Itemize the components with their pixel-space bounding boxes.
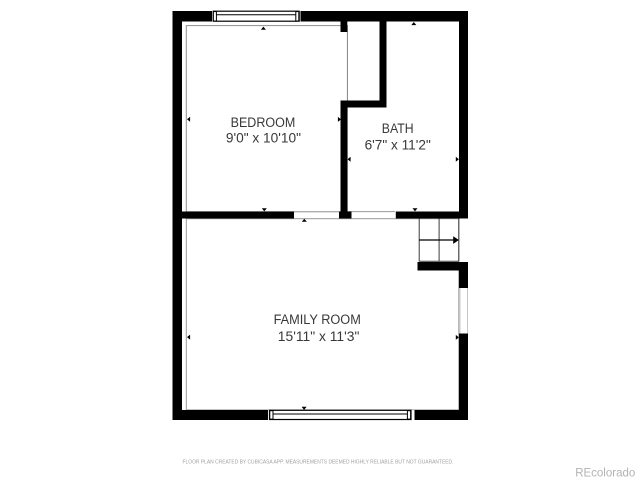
- svg-text:FAMILY ROOM: FAMILY ROOM: [274, 312, 361, 328]
- svg-text:BATH: BATH: [382, 121, 414, 137]
- svg-text:REcolorado: REcolorado: [575, 466, 635, 480]
- svg-text:9'0" x 10'10": 9'0" x 10'10": [226, 131, 301, 147]
- svg-text:6'7" x 11'2": 6'7" x 11'2": [365, 137, 431, 153]
- svg-text:BEDROOM: BEDROOM: [231, 115, 296, 131]
- svg-text:15'11" x 11'3": 15'11" x 11'3": [278, 329, 360, 345]
- svg-text:FLOOR PLAN CREATED BY CUBICASA: FLOOR PLAN CREATED BY CUBICASA APP. MEAS…: [183, 460, 454, 466]
